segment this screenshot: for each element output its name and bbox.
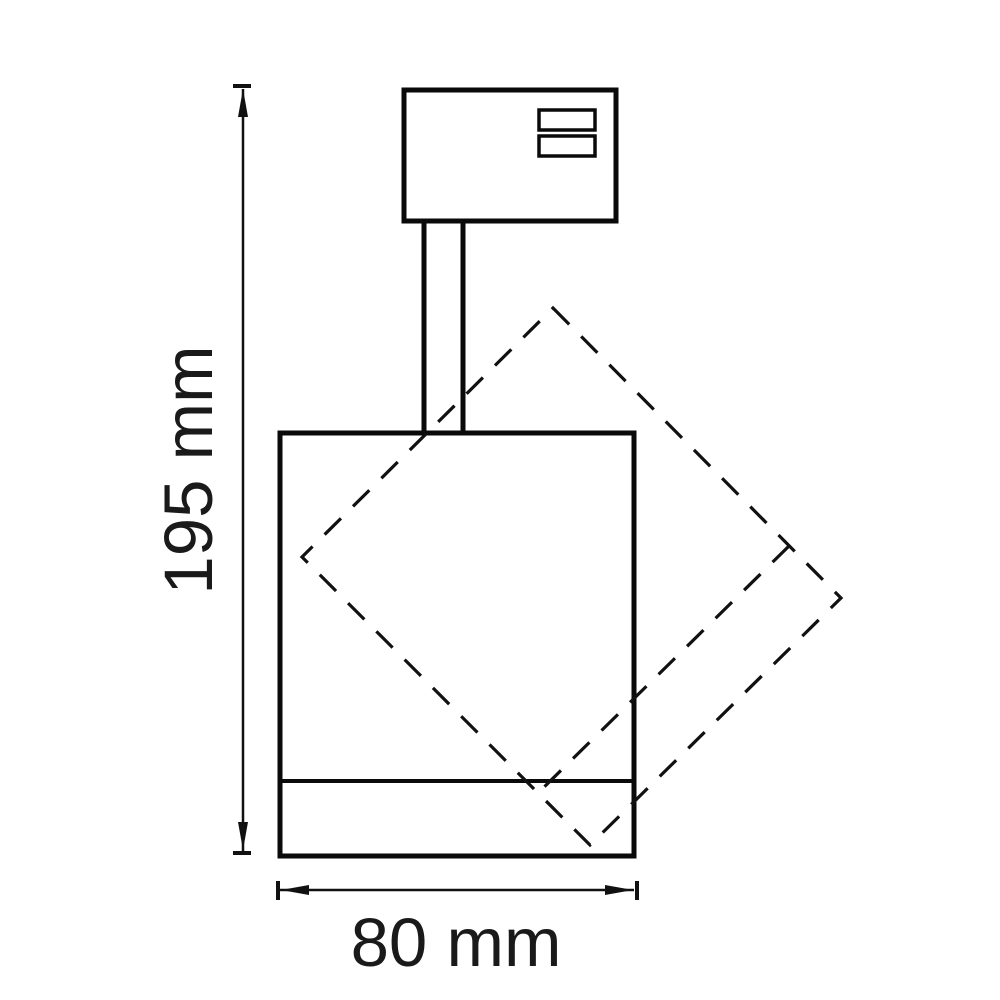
track-adapter bbox=[404, 90, 616, 221]
dimension-drawing-canvas: 195 mm 80 mm bbox=[0, 0, 1000, 1000]
stem bbox=[424, 221, 463, 433]
width-dimension-label: 80 mm bbox=[351, 904, 562, 981]
arrow-up-icon bbox=[238, 89, 248, 117]
width-dimension: 80 mm bbox=[278, 881, 637, 981]
height-dimension: 195 mm bbox=[150, 86, 251, 853]
arrow-left-icon bbox=[281, 885, 309, 895]
lamp-body bbox=[280, 433, 634, 856]
arrow-down-icon bbox=[238, 822, 248, 850]
arrow-right-icon bbox=[605, 885, 633, 895]
lamp-body-outline bbox=[280, 433, 634, 856]
height-dimension-label: 195 mm bbox=[150, 345, 227, 594]
adapter-slot-top bbox=[539, 110, 595, 130]
adapter-slot-bottom bbox=[539, 136, 595, 156]
technical-drawing: 195 mm 80 mm bbox=[0, 0, 1000, 1000]
